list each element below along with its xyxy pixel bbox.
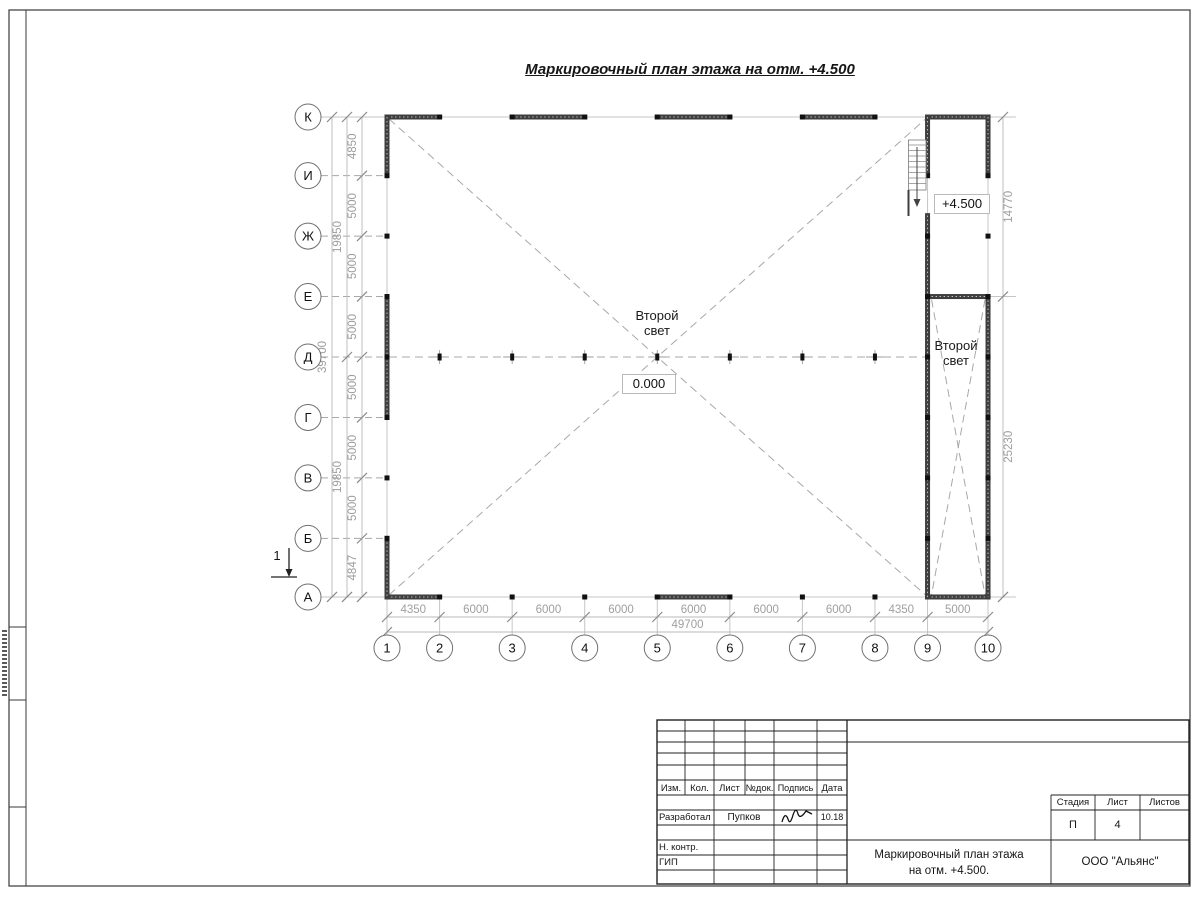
- column-marker: [872, 594, 877, 599]
- interior-column-marker: [728, 354, 732, 361]
- axis-letter-label: В: [304, 470, 313, 485]
- interior-column-marker: [800, 354, 804, 361]
- axis-letter-label: К: [304, 110, 312, 125]
- axis-number-label: 9: [924, 641, 931, 656]
- dim-value-horizontal: 4350: [401, 604, 427, 616]
- titleblock-header-col: Кол.: [690, 783, 709, 794]
- second-light-label-main: Второй свет: [607, 308, 707, 338]
- column-marker: [385, 234, 390, 239]
- titleblock-developed-label: Разработал: [659, 810, 713, 825]
- dim-total-vertical: 19850: [332, 221, 344, 253]
- titleblock-header-col: Подпись: [778, 783, 814, 793]
- axis-letter-label: Д: [304, 350, 313, 365]
- axis-number-label: 10: [981, 641, 995, 656]
- interior-column-marker: [873, 354, 877, 361]
- level-zero-label: 0.000: [622, 374, 676, 394]
- wall-inner-right: [925, 213, 930, 599]
- column-marker: [986, 294, 991, 299]
- dim-value-vertical: 5000: [347, 314, 359, 340]
- axis-letter-label: А: [304, 589, 313, 604]
- wall-bottom: [385, 594, 443, 599]
- axis-number-label: 5: [654, 641, 661, 656]
- level-upper-label: +4.500: [934, 194, 990, 214]
- axis-number-label: 1: [383, 641, 390, 656]
- titleblock-developed-date: 10.18: [817, 810, 847, 825]
- wall-top: [385, 115, 443, 120]
- column-marker: [986, 173, 991, 178]
- dim-value-horizontal: 6000: [753, 604, 779, 616]
- column-marker: [925, 234, 930, 239]
- second-light-label-annex: Второй свет: [916, 338, 996, 368]
- axis-letter-label: Ж: [302, 229, 314, 244]
- column-marker: [437, 594, 442, 599]
- axis-number-label: 2: [436, 641, 443, 656]
- dim-value-horizontal: 6000: [681, 604, 707, 616]
- interior-column-marker: [510, 354, 514, 361]
- titleblock-header-col: Дата: [821, 783, 843, 794]
- column-marker: [986, 415, 991, 420]
- titleblock-stage-value: П: [1051, 810, 1095, 840]
- titleblock-sheet-label: Лист: [1095, 795, 1140, 810]
- dim-value-vertical: 4847: [347, 555, 359, 581]
- signature-icon: [782, 810, 812, 822]
- titleblock-developed-name: Пупков: [714, 810, 774, 825]
- titleblock-gip-label: ГИП: [659, 855, 713, 870]
- titleblock-sheets-value: [1140, 810, 1189, 840]
- dim-total-vertical: 19850: [332, 461, 344, 493]
- axis-number-label: 8: [871, 641, 878, 656]
- dim-value-vertical: 4850: [347, 134, 359, 160]
- axis-letter-label: Б: [304, 531, 313, 546]
- titleblock-sheets-label: Листов: [1140, 795, 1189, 810]
- drawing-sheet: 4850500050005000500050005000484719850198…: [0, 0, 1200, 900]
- interior-column-marker: [655, 354, 659, 361]
- dim-value-vertical: 5000: [347, 435, 359, 461]
- axis-letter-label: Г: [304, 410, 311, 425]
- dim-overall-horizontal: 49700: [672, 619, 704, 631]
- dim-value-horizontal: 6000: [463, 604, 489, 616]
- column-marker: [986, 536, 991, 541]
- column-marker: [385, 415, 390, 420]
- dim-value-horizontal: 6000: [536, 604, 562, 616]
- titleblock-header-col: №док.: [746, 783, 774, 794]
- plan-drawing: 4850500050005000500050005000484719850198…: [0, 0, 1200, 900]
- column-marker: [872, 115, 877, 120]
- drawing-title: Маркировочный план этажа на отм. +4.500: [450, 61, 930, 78]
- titleblock-header-col: Лист: [719, 783, 740, 794]
- dim-value-horizontal: 6000: [826, 604, 852, 616]
- column-marker: [582, 594, 587, 599]
- dim-value-horizontal: 6000: [608, 604, 634, 616]
- titleblock-ncontr-label: Н. контр.: [659, 840, 713, 855]
- axis-letter-label: Е: [304, 289, 313, 304]
- column-marker: [582, 115, 587, 120]
- section-mark-number: 1: [270, 548, 284, 563]
- axis-number-label: 6: [726, 641, 733, 656]
- column-marker: [800, 594, 805, 599]
- dim-value-horizontal: 5000: [945, 604, 971, 616]
- axis-number-label: 3: [509, 641, 516, 656]
- column-marker: [727, 594, 732, 599]
- titleblock-header-col: Изм.: [661, 783, 681, 794]
- dim-value-vertical: 5000: [347, 374, 359, 400]
- section-arrow-icon: [286, 569, 293, 577]
- interior-column-marker: [583, 354, 587, 361]
- titleblock-doc-title-line2: на отм. +4.500.: [849, 863, 1049, 879]
- column-marker: [510, 594, 515, 599]
- column-marker: [800, 115, 805, 120]
- dim-value-vertical: 5000: [347, 495, 359, 521]
- column-marker: [727, 115, 732, 120]
- column-marker: [925, 536, 930, 541]
- column-marker: [925, 294, 930, 299]
- titleblock-sheet-value: 4: [1095, 810, 1140, 840]
- interior-column-marker: [438, 354, 442, 361]
- column-marker: [925, 475, 930, 480]
- dim-value-vertical: 5000: [347, 254, 359, 280]
- column-marker: [925, 415, 930, 420]
- column-marker: [510, 115, 515, 120]
- column-marker: [655, 115, 660, 120]
- axis-number-label: 7: [799, 641, 806, 656]
- dim-value-horizontal: 4350: [888, 604, 914, 616]
- axis-letter-label: И: [303, 168, 312, 183]
- titleblock-stage-label: Стадия: [1051, 795, 1095, 810]
- titleblock-company: ООО "Альянс": [1051, 840, 1189, 884]
- column-marker: [986, 234, 991, 239]
- dim-value-right: 25230: [1003, 431, 1015, 463]
- stair-down-arrow-icon: [914, 199, 921, 207]
- column-marker: [385, 536, 390, 541]
- column-marker: [385, 173, 390, 178]
- column-marker: [385, 294, 390, 299]
- column-marker: [986, 475, 991, 480]
- column-marker: [437, 115, 442, 120]
- column-marker: [385, 475, 390, 480]
- titleblock-doc-title-line1: Маркировочный план этажа: [849, 847, 1049, 863]
- axis-number-label: 4: [581, 641, 588, 656]
- dim-value-right: 14770: [1003, 191, 1015, 223]
- column-marker: [655, 594, 660, 599]
- column-marker: [385, 355, 390, 360]
- dim-value-vertical: 5000: [347, 193, 359, 219]
